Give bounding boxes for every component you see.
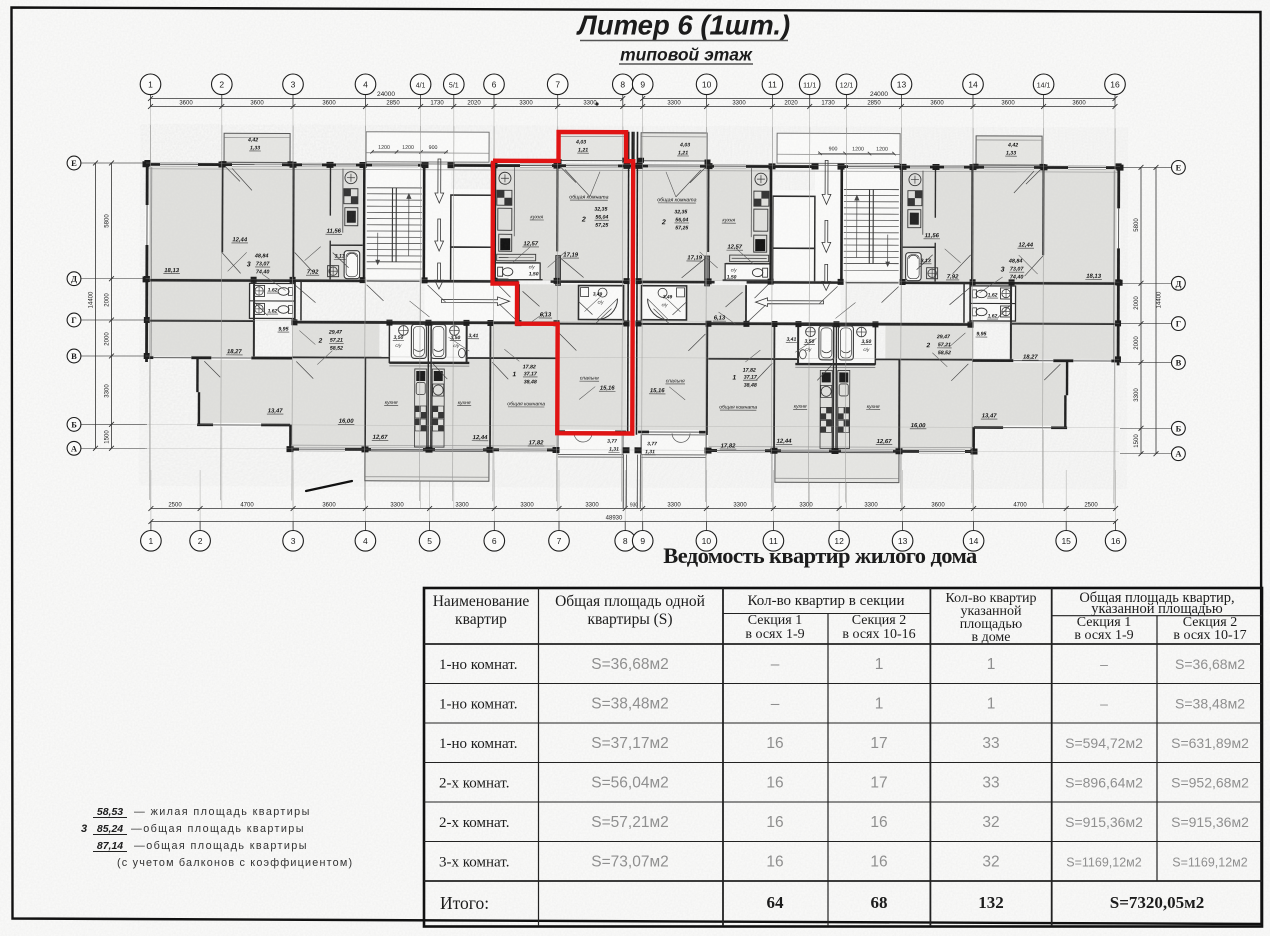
- svg-text:74,40: 74,40: [1010, 275, 1024, 281]
- svg-text:32,35: 32,35: [674, 209, 687, 215]
- svg-text:3600: 3600: [179, 101, 193, 107]
- svg-text:S=915,36м2: S=915,36м2: [1171, 814, 1249, 830]
- svg-text:4700: 4700: [240, 503, 254, 509]
- svg-text:Е: Е: [1176, 162, 1182, 172]
- svg-text:1-но комнат.: 1-но комнат.: [439, 736, 517, 752]
- svg-text:37,17: 37,17: [524, 371, 538, 377]
- svg-text:17: 17: [870, 774, 887, 791]
- svg-text:с/у: с/у: [662, 302, 669, 307]
- svg-text:1,21: 1,21: [678, 150, 688, 156]
- svg-text:Секция 2: Секция 2: [852, 613, 906, 628]
- svg-text:–: –: [771, 656, 780, 673]
- svg-text:29,47: 29,47: [936, 334, 951, 340]
- svg-text:спальня: спальня: [666, 378, 685, 384]
- svg-text:3300: 3300: [1134, 388, 1140, 402]
- svg-text:с/у: с/у: [863, 347, 870, 352]
- svg-text:1,31: 1,31: [645, 449, 655, 455]
- svg-text:13,47: 13,47: [982, 413, 997, 419]
- svg-text:—общая площадь квартиры: —общая площадь квартиры: [131, 823, 305, 835]
- svg-text:с/у: с/у: [598, 300, 605, 305]
- svg-text:–: –: [1100, 656, 1108, 672]
- svg-text:33: 33: [982, 735, 999, 752]
- svg-text:5: 5: [427, 536, 432, 546]
- svg-text:1,33: 1,33: [250, 145, 260, 151]
- svg-text:в осях 1-9: в осях 1-9: [745, 627, 804, 642]
- svg-text:2-х комнат.: 2-х комнат.: [439, 775, 509, 791]
- svg-text:8: 8: [620, 79, 625, 89]
- svg-text:S=952,68м2: S=952,68м2: [1171, 774, 1249, 790]
- svg-text:3300: 3300: [583, 101, 597, 107]
- svg-text:кухня: кухня: [867, 404, 880, 410]
- svg-text:1: 1: [149, 536, 154, 546]
- svg-text:4,03: 4,03: [679, 142, 690, 148]
- svg-text:3,50: 3,50: [451, 335, 461, 341]
- svg-text:4,42: 4,42: [1007, 143, 1018, 149]
- svg-text:Г: Г: [1176, 319, 1181, 329]
- svg-text:общая комната: общая комната: [569, 194, 608, 200]
- svg-text:3,13: 3,13: [335, 254, 345, 260]
- svg-text:3,50: 3,50: [805, 339, 815, 345]
- svg-text:11,56: 11,56: [327, 229, 342, 235]
- svg-text:17,82: 17,82: [721, 444, 736, 450]
- svg-text:7: 7: [557, 536, 562, 546]
- svg-text:3,50: 3,50: [862, 339, 872, 345]
- svg-text:12,57: 12,57: [727, 245, 742, 251]
- svg-text:2850: 2850: [386, 101, 400, 107]
- svg-text:3,49: 3,49: [663, 294, 673, 300]
- svg-text:16,00: 16,00: [911, 423, 926, 429]
- svg-text:S=36,68м2: S=36,68м2: [591, 656, 668, 673]
- svg-text:Д: Д: [71, 274, 77, 284]
- svg-text:56,04: 56,04: [675, 217, 688, 223]
- svg-text:12/1: 12/1: [840, 82, 854, 89]
- svg-text:1-но комнат.: 1-но комнат.: [439, 657, 517, 673]
- svg-text:Д: Д: [1175, 278, 1181, 288]
- svg-text:16,00: 16,00: [339, 419, 354, 425]
- svg-text:6: 6: [492, 536, 497, 546]
- svg-text:2500: 2500: [1084, 503, 1098, 509]
- svg-text:1: 1: [875, 695, 884, 712]
- svg-text:24000: 24000: [870, 91, 888, 98]
- svg-text:16: 16: [766, 774, 783, 791]
- svg-text:2: 2: [581, 217, 586, 224]
- svg-text:15: 15: [1061, 536, 1071, 546]
- svg-text:1,62: 1,62: [268, 287, 278, 293]
- svg-text:1,33: 1,33: [1006, 151, 1016, 157]
- svg-text:9,95: 9,95: [976, 331, 986, 337]
- svg-text:7,92: 7,92: [307, 270, 319, 276]
- svg-text:3300: 3300: [520, 503, 534, 509]
- svg-text:15,16: 15,16: [600, 386, 615, 392]
- svg-text:2020: 2020: [467, 101, 481, 107]
- svg-text:2000: 2000: [1134, 336, 1140, 350]
- svg-text:12,44: 12,44: [473, 435, 488, 441]
- svg-text:общая комната: общая комната: [507, 401, 545, 407]
- svg-text:Ведомость квартир жилого дома: Ведомость квартир жилого дома: [663, 543, 977, 568]
- svg-text:1200: 1200: [876, 147, 888, 153]
- svg-text:14/1: 14/1: [1037, 82, 1051, 89]
- svg-text:2500: 2500: [168, 503, 182, 509]
- svg-text:3,50: 3,50: [394, 335, 404, 341]
- svg-text:3,49: 3,49: [593, 292, 603, 298]
- svg-text:1-но комнат.: 1-но комнат.: [439, 696, 517, 712]
- svg-text:18,13: 18,13: [164, 268, 179, 274]
- svg-text:2020: 2020: [784, 101, 798, 107]
- svg-text:–: –: [771, 695, 780, 712]
- svg-text:16: 16: [870, 853, 887, 870]
- svg-text:Кол-во квартир в секции: Кол-во квартир в секции: [748, 593, 905, 609]
- svg-text:кухня: кухня: [794, 404, 807, 410]
- svg-text:В: В: [71, 351, 77, 361]
- svg-text:14400: 14400: [1157, 291, 1163, 308]
- svg-text:1,21: 1,21: [578, 148, 588, 154]
- svg-text:18,13: 18,13: [1086, 274, 1101, 280]
- svg-text:9: 9: [640, 79, 645, 89]
- svg-text:16: 16: [870, 814, 887, 831]
- svg-text:S=915,36м2: S=915,36м2: [1065, 814, 1143, 830]
- svg-text:S=57,21м2: S=57,21м2: [591, 814, 668, 831]
- svg-text:56,04: 56,04: [595, 215, 608, 221]
- svg-text:в доме: в доме: [971, 630, 1010, 645]
- svg-text:1500: 1500: [1134, 434, 1140, 448]
- svg-text:3,41: 3,41: [469, 333, 479, 339]
- svg-text:3: 3: [81, 823, 87, 835]
- svg-text:12,67: 12,67: [373, 435, 388, 441]
- svg-text:18,27: 18,27: [227, 349, 242, 355]
- svg-text:4,03: 4,03: [575, 139, 586, 145]
- svg-text:32,35: 32,35: [594, 207, 607, 213]
- svg-text:68: 68: [871, 893, 888, 912]
- svg-text:2000: 2000: [105, 332, 111, 346]
- svg-text:3300: 3300: [864, 503, 878, 509]
- svg-text:12,44: 12,44: [232, 237, 247, 243]
- svg-text:11: 11: [768, 79, 777, 89]
- svg-text:общая комната: общая комната: [719, 405, 757, 411]
- svg-text:3300: 3300: [667, 101, 681, 107]
- svg-text:3600: 3600: [930, 101, 944, 107]
- svg-text:(с учетом балконов с коэффи: (с учетом балконов с коэффициентом): [117, 857, 353, 869]
- svg-text:15,16: 15,16: [650, 388, 665, 394]
- svg-text:2000: 2000: [1134, 296, 1140, 310]
- svg-text:5800: 5800: [1134, 218, 1140, 232]
- svg-text:58,52: 58,52: [938, 350, 951, 356]
- svg-text:с/у: с/у: [529, 264, 536, 269]
- svg-text:А: А: [71, 443, 78, 453]
- svg-text:1: 1: [987, 656, 996, 673]
- svg-text:29,47: 29,47: [328, 330, 343, 336]
- svg-text:3600: 3600: [322, 101, 336, 107]
- svg-text:1: 1: [732, 375, 736, 382]
- svg-text:Общая площадь одной: Общая площадь одной: [555, 593, 705, 610]
- svg-text:4700: 4700: [1013, 503, 1027, 509]
- svg-text:58,53: 58,53: [97, 806, 123, 818]
- svg-text:38,48: 38,48: [744, 383, 757, 389]
- svg-text:3300: 3300: [455, 503, 469, 509]
- svg-text:64: 64: [767, 893, 785, 912]
- svg-text:типовой этаж: типовой этаж: [620, 45, 753, 65]
- svg-text:3600: 3600: [1072, 101, 1086, 107]
- svg-text:9,95: 9,95: [278, 326, 288, 332]
- svg-text:16: 16: [766, 735, 783, 752]
- svg-text:с/у: с/у: [453, 343, 460, 348]
- svg-text:14: 14: [968, 79, 978, 89]
- svg-text:17: 17: [870, 735, 887, 752]
- svg-text:3: 3: [291, 536, 296, 546]
- svg-text:общая комната: общая комната: [657, 197, 696, 203]
- svg-text:3,41: 3,41: [787, 337, 797, 343]
- svg-text:1: 1: [875, 656, 884, 673]
- svg-text:3300: 3300: [519, 101, 533, 107]
- svg-text:1500: 1500: [105, 430, 111, 444]
- svg-text:73,07: 73,07: [1010, 267, 1025, 273]
- svg-text:кухня: кухня: [530, 214, 543, 220]
- svg-text:S=1169,12м2: S=1169,12м2: [1066, 855, 1141, 869]
- svg-text:33: 33: [982, 774, 999, 791]
- svg-text:2: 2: [198, 536, 203, 546]
- svg-text:73,07: 73,07: [256, 261, 271, 267]
- svg-text:900: 900: [429, 145, 438, 151]
- svg-text:17,19: 17,19: [687, 255, 702, 261]
- svg-text:48,84: 48,84: [254, 253, 269, 259]
- svg-text:S=1169,12м2: S=1169,12м2: [1172, 855, 1247, 869]
- svg-text:S=37,17м2: S=37,17м2: [591, 735, 668, 752]
- svg-text:— жилая площадь квартиры: — жилая площадь квартиры: [134, 806, 311, 818]
- svg-text:17,82: 17,82: [743, 368, 756, 374]
- svg-text:7,92: 7,92: [947, 274, 959, 280]
- svg-text:3600: 3600: [931, 503, 945, 509]
- svg-text:квартиры (S): квартиры (S): [587, 611, 672, 628]
- svg-text:3600: 3600: [250, 101, 264, 107]
- svg-text:18,27: 18,27: [1023, 355, 1038, 361]
- svg-text:S=73,07м2: S=73,07м2: [591, 853, 668, 870]
- svg-text:1,62: 1,62: [268, 308, 278, 314]
- svg-text:3300: 3300: [390, 503, 404, 509]
- svg-text:32: 32: [982, 814, 999, 831]
- svg-text:4: 4: [363, 536, 368, 546]
- svg-text:Е: Е: [71, 158, 77, 168]
- svg-text:16: 16: [1110, 79, 1120, 89]
- svg-text:1200: 1200: [378, 145, 390, 151]
- svg-text:1: 1: [512, 371, 516, 378]
- svg-text:57,21: 57,21: [330, 338, 343, 344]
- svg-text:13,47: 13,47: [268, 408, 283, 414]
- svg-text:2: 2: [219, 79, 224, 89]
- svg-text:А: А: [1175, 449, 1182, 459]
- svg-text:в осях 1-9: в осях 1-9: [1074, 628, 1133, 643]
- svg-text:48930: 48930: [606, 516, 623, 522]
- svg-text:S=38,48м2: S=38,48м2: [591, 695, 668, 712]
- svg-text:1,50: 1,50: [529, 271, 539, 277]
- svg-text:3-х комнат.: 3-х комнат.: [439, 854, 509, 870]
- svg-text:132: 132: [978, 893, 1004, 912]
- svg-text:57,21: 57,21: [938, 342, 951, 348]
- svg-text:3300: 3300: [585, 503, 599, 509]
- svg-text:4/1: 4/1: [416, 82, 426, 89]
- svg-text:5/1: 5/1: [449, 82, 459, 89]
- svg-text:кухня: кухня: [385, 400, 398, 406]
- svg-text:3600: 3600: [1001, 101, 1015, 107]
- svg-text:1: 1: [148, 79, 153, 89]
- svg-text:Б: Б: [71, 419, 77, 429]
- svg-text:3300: 3300: [667, 503, 681, 509]
- svg-text:1,50: 1,50: [727, 275, 737, 281]
- svg-text:1,62: 1,62: [988, 292, 998, 298]
- svg-text:квартир: квартир: [455, 611, 507, 628]
- svg-text:S=594,72м2: S=594,72м2: [1065, 735, 1143, 751]
- svg-text:S=896,64м2: S=896,64м2: [1065, 774, 1143, 790]
- svg-text:6: 6: [492, 79, 497, 89]
- svg-text:6,13: 6,13: [540, 312, 552, 318]
- svg-text:В: В: [1176, 358, 1182, 368]
- svg-text:2: 2: [926, 342, 931, 349]
- svg-text:Б: Б: [1176, 423, 1182, 433]
- svg-text:8: 8: [623, 536, 628, 546]
- svg-text:с/у: с/у: [805, 347, 812, 352]
- svg-text:900: 900: [829, 146, 838, 152]
- svg-text:10: 10: [702, 79, 712, 89]
- svg-text:S=631,89м2: S=631,89м2: [1171, 735, 1249, 751]
- svg-text:4: 4: [363, 79, 368, 89]
- svg-text:24000: 24000: [377, 91, 395, 98]
- svg-text:спальня: спальня: [580, 376, 599, 382]
- svg-text:S=7320,05м2: S=7320,05м2: [1110, 893, 1204, 912]
- svg-text:12,67: 12,67: [877, 439, 892, 445]
- svg-text:57,25: 57,25: [675, 225, 688, 231]
- svg-text:1730: 1730: [821, 101, 835, 107]
- svg-text:11,56: 11,56: [925, 233, 940, 239]
- svg-text:с/у: с/у: [731, 268, 738, 273]
- svg-text:2000: 2000: [105, 293, 111, 307]
- svg-text:9: 9: [640, 536, 645, 546]
- svg-text:13: 13: [897, 79, 907, 89]
- svg-text:16: 16: [766, 853, 783, 870]
- svg-text:2: 2: [318, 338, 323, 345]
- svg-text:1730: 1730: [430, 101, 444, 107]
- svg-text:6,13: 6,13: [714, 315, 726, 321]
- svg-text:с/у: с/у: [395, 343, 402, 348]
- svg-text:Наименование: Наименование: [433, 593, 530, 610]
- svg-text:кухня: кухня: [458, 400, 471, 406]
- svg-text:58,52: 58,52: [330, 346, 343, 352]
- svg-text:14400: 14400: [89, 291, 95, 308]
- svg-text:3: 3: [247, 261, 251, 268]
- svg-text:12,44: 12,44: [777, 439, 792, 445]
- svg-text:3,77: 3,77: [647, 441, 657, 447]
- svg-text:3300: 3300: [732, 101, 746, 107]
- svg-text:1: 1: [987, 695, 996, 712]
- svg-text:Итого:: Итого:: [440, 893, 489, 913]
- svg-text:—общая площадь квартиры: —общая площадь квартиры: [134, 840, 308, 852]
- svg-text:7: 7: [555, 79, 560, 89]
- svg-text:32: 32: [982, 853, 999, 870]
- svg-text:1200: 1200: [402, 145, 414, 151]
- svg-text:3600: 3600: [322, 503, 336, 509]
- svg-text:1,62: 1,62: [988, 313, 998, 319]
- svg-text:S=38,48м2: S=38,48м2: [1175, 695, 1245, 711]
- svg-text:5800: 5800: [105, 214, 111, 228]
- svg-text:38,48: 38,48: [524, 379, 537, 385]
- svg-text:17,82: 17,82: [523, 364, 536, 370]
- svg-text:3: 3: [1001, 266, 1005, 273]
- svg-text:в осях 10-17: в осях 10-17: [1173, 628, 1246, 643]
- svg-text:16: 16: [1111, 536, 1121, 546]
- svg-text:3300: 3300: [105, 384, 111, 398]
- svg-text:Г: Г: [71, 315, 76, 325]
- svg-text:4,42: 4,42: [247, 137, 258, 143]
- svg-text:16: 16: [766, 814, 783, 831]
- svg-text:1200: 1200: [852, 146, 864, 152]
- svg-text:37,17: 37,17: [744, 375, 758, 381]
- svg-text:3,13: 3,13: [921, 258, 931, 264]
- svg-text:2-х комнат.: 2-х комнат.: [439, 815, 509, 831]
- svg-text:85,24: 85,24: [97, 823, 123, 835]
- svg-text:48,84: 48,84: [1008, 259, 1023, 265]
- svg-text:Секция 1: Секция 1: [748, 613, 802, 628]
- svg-text:S=36,68м2: S=36,68м2: [1175, 656, 1245, 672]
- svg-text:12,57: 12,57: [523, 241, 538, 247]
- svg-text:3300: 3300: [799, 503, 813, 509]
- svg-text:57,25: 57,25: [595, 223, 608, 229]
- svg-text:Литер 6 (1шт.): Литер 6 (1шт.): [576, 10, 790, 41]
- svg-text:87,14: 87,14: [97, 840, 123, 852]
- svg-text:17,19: 17,19: [563, 252, 578, 258]
- svg-text:в осях 10-16: в осях 10-16: [842, 627, 915, 642]
- svg-text:1,31: 1,31: [609, 447, 619, 453]
- svg-text:3: 3: [291, 79, 296, 89]
- svg-text:2850: 2850: [867, 101, 881, 107]
- svg-text:3300: 3300: [733, 503, 747, 509]
- svg-text:–: –: [1100, 695, 1108, 711]
- svg-text:кухня: кухня: [722, 218, 735, 224]
- svg-text:3,77: 3,77: [607, 439, 617, 445]
- svg-text:11/1: 11/1: [803, 82, 816, 89]
- svg-text:17,82: 17,82: [529, 440, 544, 446]
- svg-text:12,44: 12,44: [1018, 243, 1033, 249]
- svg-text:2: 2: [661, 219, 666, 226]
- svg-text:S=56,04м2: S=56,04м2: [591, 774, 668, 791]
- svg-text:74,40: 74,40: [256, 269, 270, 275]
